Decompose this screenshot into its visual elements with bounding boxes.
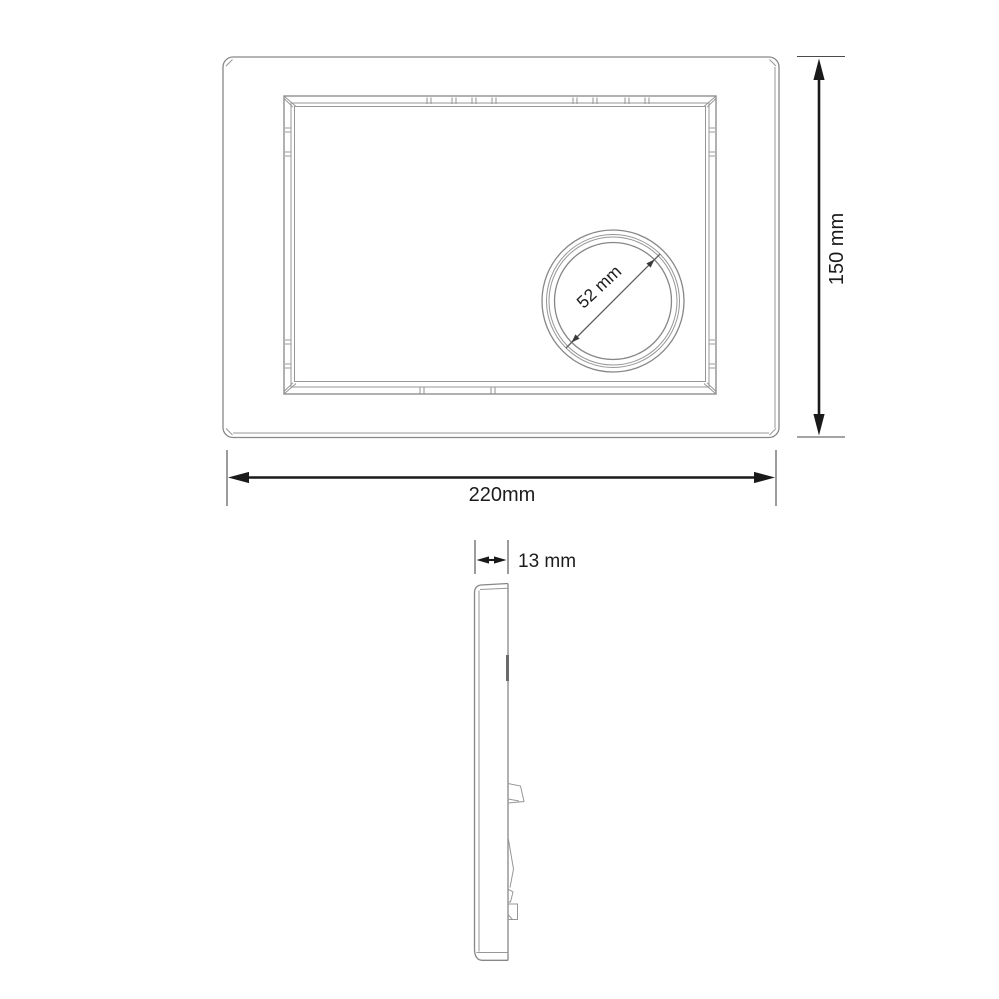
dimension-height: 150 mm [797, 57, 848, 438]
width-label: 220mm [469, 484, 536, 506]
plate-profile [475, 584, 509, 961]
dimension-width: 220mm [227, 450, 776, 506]
height-label: 150 mm [826, 213, 848, 285]
front-view: 52 mm 150 mm 220mm [223, 57, 848, 507]
dimension-depth: 13 mm [475, 540, 576, 574]
technical-drawing-canvas: 52 mm 150 mm 220mm [0, 0, 999, 999]
side-view: 13 mm [475, 540, 577, 961]
technical-drawing-page: 52 mm 150 mm 220mm [0, 0, 999, 999]
mounting-clips [508, 655, 525, 920]
plate-outline [223, 57, 779, 438]
button-diameter-label: 52 mm [573, 261, 626, 312]
inner-frame [284, 96, 716, 394]
frame-clip-ticks-bottom [420, 388, 495, 394]
depth-label: 13 mm [518, 551, 576, 572]
dimension-button-diameter: 52 mm [566, 254, 660, 348]
